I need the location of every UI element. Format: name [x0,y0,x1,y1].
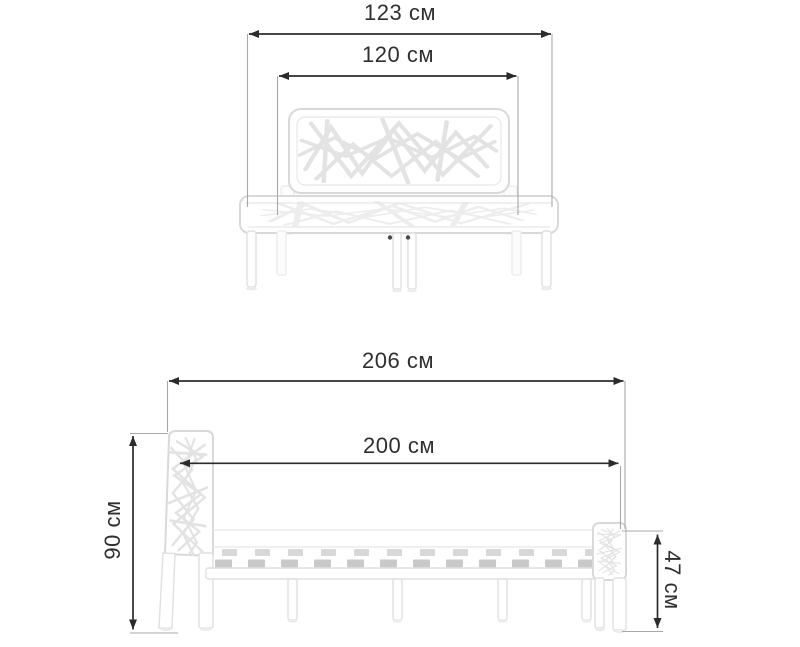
footboard-leg-front [613,578,626,630]
dimension-label-headboard-height: 90 см [102,500,124,559]
front-foot [541,287,552,291]
headboard-foot [200,627,212,631]
rail-leg [498,579,507,620]
headboard-leg-back [159,553,175,628]
headboard-leg-front [199,553,213,628]
footboard-leg-back [595,578,604,628]
side-view-drawing [159,431,626,633]
front-rail-side [206,568,623,579]
rail-foot [288,619,297,622]
headboard-foot [161,627,173,631]
front-foot [246,287,257,291]
product-dimensions-diagram: 123 см 120 см 206 см 200 см 90 см 47 см [0,0,800,647]
front-leg-rear-right [512,231,521,275]
front-foot [392,289,402,293]
dimension-label-overall-width: 123 см [364,2,436,24]
rail-leg [288,579,297,620]
rail-leg [582,579,591,620]
front-leg-outer-left [247,231,256,287]
footboard-foot [595,628,605,632]
rail-foot [582,619,591,622]
rail-leg [393,579,402,620]
slats-upper-row [222,549,600,556]
bolt-dot [388,235,392,239]
front-leg-middle-right [408,233,416,289]
rail-foot [393,619,402,622]
dimension-label-mattress-length: 200 см [363,435,435,457]
rail-foot [498,619,507,622]
front-foot [407,289,417,293]
bolt-dot [406,235,410,239]
front-leg-outer-right [542,231,551,287]
dimension-label-footboard-height: 47 см [661,550,683,609]
front-view-drawing [240,109,558,292]
front-leg-rear-left [277,231,286,275]
dimension-label-overall-length: 206 см [362,350,434,372]
front-leg-middle-left [393,233,401,289]
slats-lower-row [215,560,616,568]
dimension-label-mattress-width: 120 см [362,44,434,66]
